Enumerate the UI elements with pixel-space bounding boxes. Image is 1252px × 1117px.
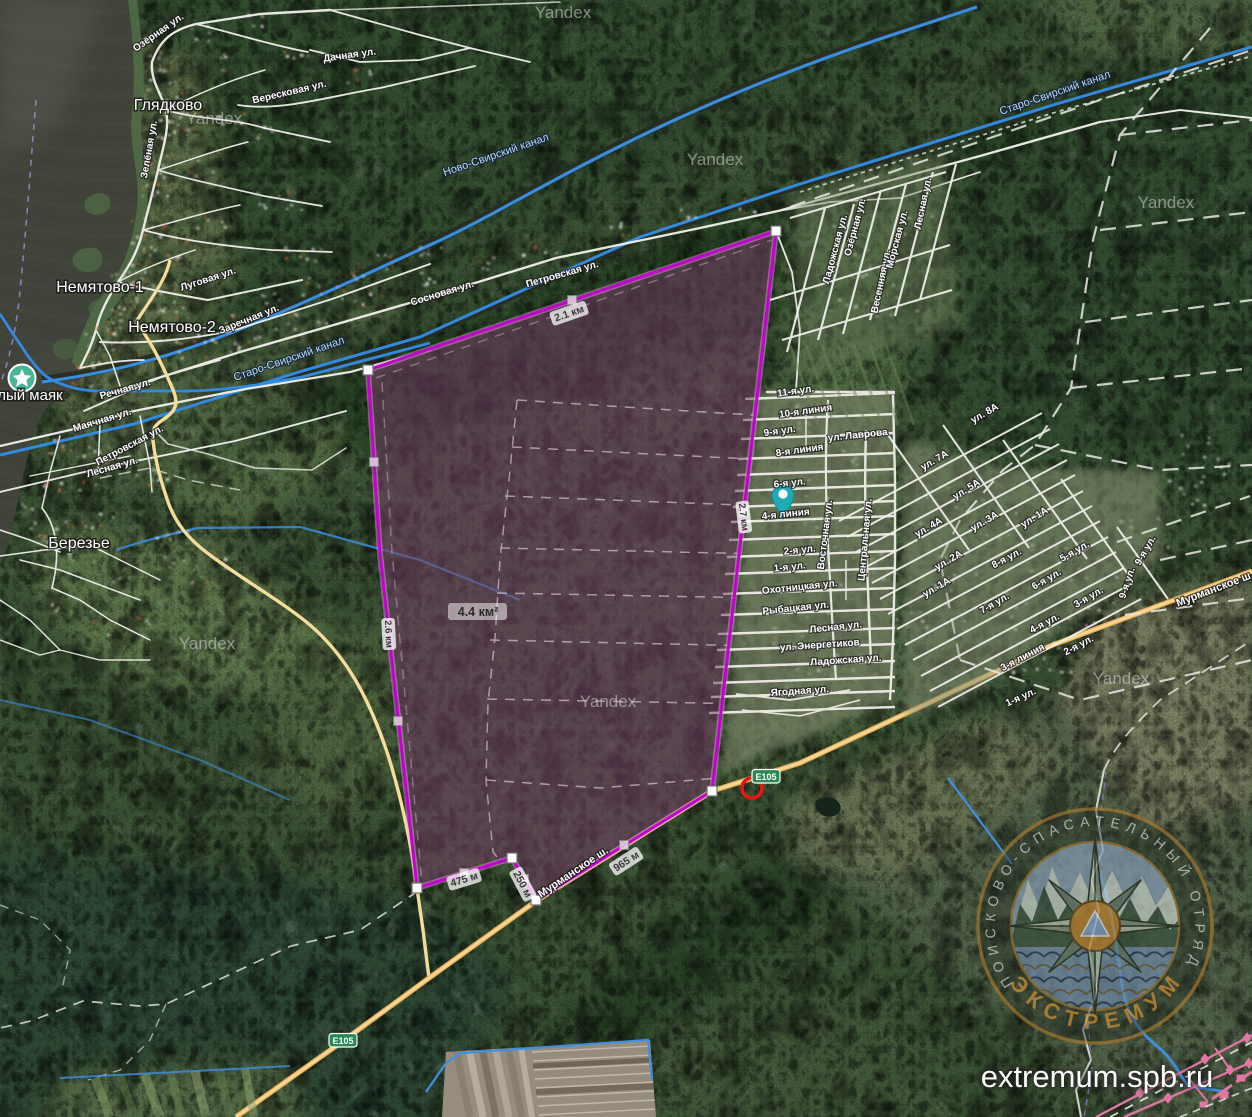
- svg-text:Березье: Березье: [48, 535, 110, 552]
- svg-text:E105: E105: [755, 772, 776, 782]
- svg-text:2.6 км: 2.6 км: [382, 620, 394, 648]
- svg-text:Немятово-1: Немятово-1: [56, 279, 144, 296]
- svg-text:Yandex: Yandex: [179, 634, 236, 653]
- svg-text:4.4 км²: 4.4 км²: [458, 605, 499, 619]
- svg-text:Yandex: Yandex: [580, 692, 637, 711]
- svg-text:Yandex: Yandex: [1093, 669, 1150, 688]
- svg-text:E105: E105: [332, 1036, 353, 1046]
- svg-text:extremum.spb.ru: extremum.spb.ru: [981, 1059, 1214, 1094]
- svg-text:Yandex: Yandex: [687, 150, 744, 169]
- svg-text:Немятово-2: Немятово-2: [128, 319, 216, 336]
- svg-text:Yandex: Yandex: [186, 109, 243, 128]
- svg-text:Yandex: Yandex: [1138, 193, 1195, 212]
- svg-text:Yandex: Yandex: [535, 3, 592, 22]
- svg-text:елый маяк: елый маяк: [0, 387, 63, 404]
